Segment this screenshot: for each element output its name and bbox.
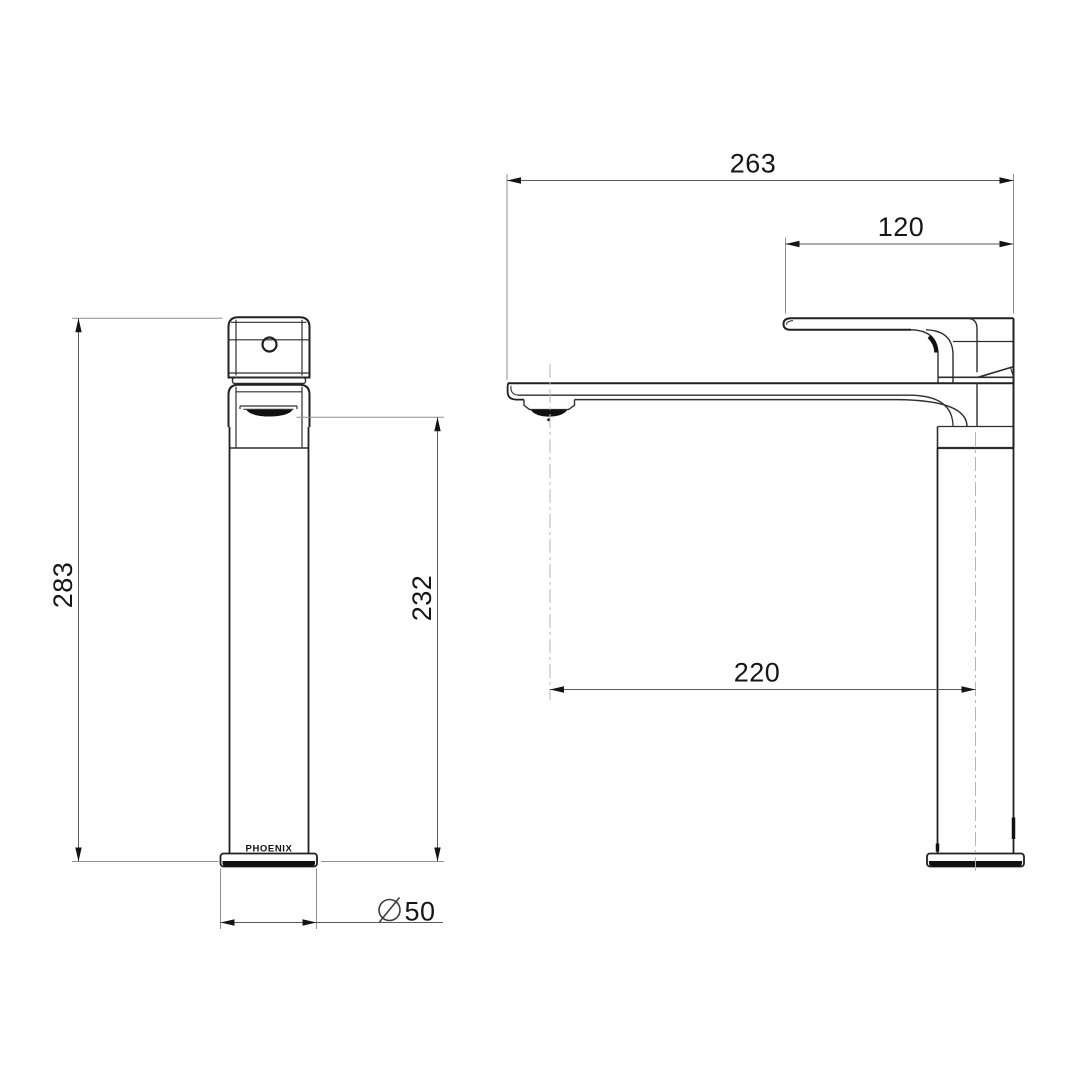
front-view: PHOENIX <box>221 317 318 867</box>
tapware-dimension-drawing: PHOENIX <box>0 0 1080 1080</box>
side-aerator <box>524 400 575 422</box>
front-handle-block <box>229 317 310 377</box>
front-base-gasket <box>223 861 316 867</box>
dim-label-50: 50 <box>405 897 436 927</box>
dim-handle-reach: 120 <box>786 212 1014 314</box>
dim-label-120: 120 <box>878 212 925 242</box>
dim-label-263: 263 <box>730 149 777 179</box>
dim-overall-depth: 263 <box>507 149 1014 380</box>
dim-label-232: 232 <box>407 575 437 622</box>
diameter-symbol-icon <box>379 898 400 923</box>
dim-base-diameter: 50 <box>221 869 444 930</box>
dim-spout-outlet-height: 232 <box>297 417 445 861</box>
dim-spout-reach: 220 <box>550 658 976 693</box>
dim-label-283: 283 <box>48 562 78 609</box>
side-view <box>508 318 1024 874</box>
technical-drawing-page: PHOENIX <box>0 0 1080 1080</box>
dim-label-220: 220 <box>734 658 781 688</box>
side-lever-handle <box>784 318 1014 383</box>
front-aerator <box>240 406 297 417</box>
front-neck-collar <box>233 378 306 384</box>
front-body-column <box>230 427 309 854</box>
dim-overall-height: 283 <box>48 318 223 861</box>
side-spout-arm <box>508 383 1014 448</box>
